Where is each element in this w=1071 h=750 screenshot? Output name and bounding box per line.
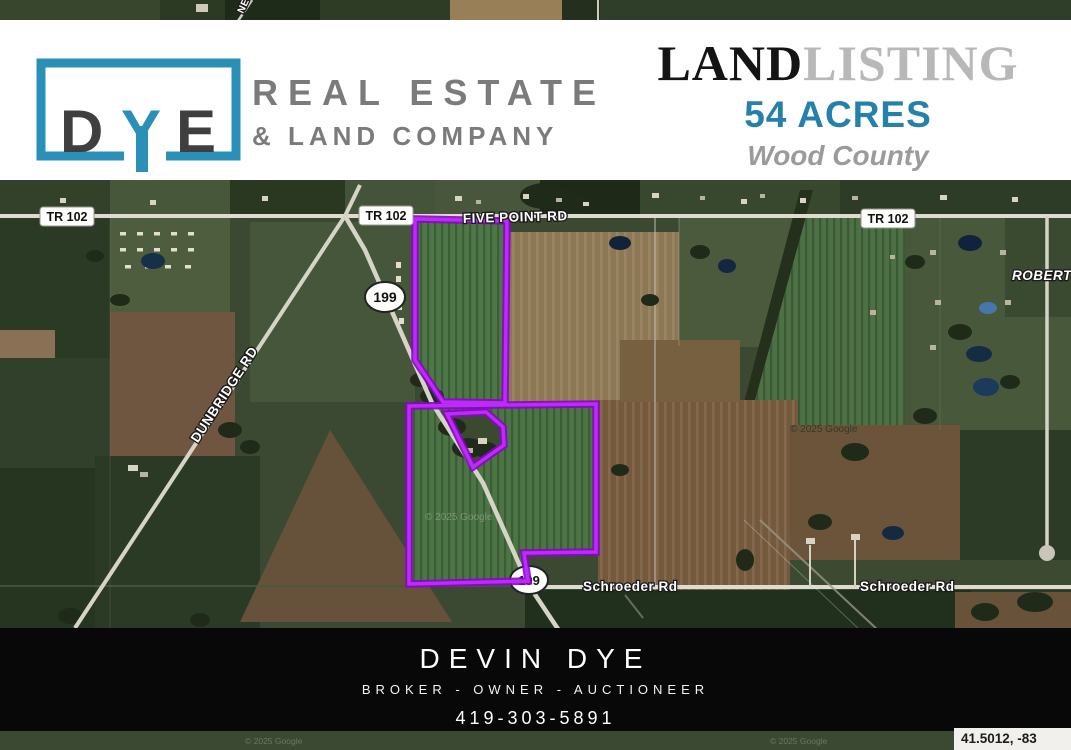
agent-title: BROKER - OWNER - AUCTIONEER [0,682,1071,697]
road-label-five-point: FIVE POINT RD [463,208,568,226]
company-name: REAL ESTATE & LAND COMPANY [252,72,606,152]
route-199-shield: 199 [365,282,405,312]
footer-banner: DEVIN DYE BROKER - OWNER - AUCTIONEER 41… [0,628,1071,731]
county-text: Wood County [628,140,1048,172]
listing-headline: LANDLISTING 54 ACRES Wood County [628,34,1048,172]
logo-letter-d: D [60,98,103,165]
google-watermark: © 2025 Google [790,424,858,435]
svg-text:TR 102: TR 102 [868,212,909,226]
map-coordinates: 41.5012, -83 [954,728,1071,750]
road-label-tr102-center: TR 102 [359,206,413,225]
svg-text:TR 102: TR 102 [366,209,407,223]
road-label-tr102-right: TR 102 [861,209,915,228]
company-name-line1: REAL ESTATE [252,72,606,114]
logo-letter-y: Y [121,98,161,165]
svg-text:TR 102: TR 102 [47,210,88,224]
acreage-text: 54 ACRES [628,94,1048,136]
agent-name: DEVIN DYE [0,643,1071,675]
land-listing-word-land: LAND [657,35,803,91]
google-watermark: © 2025 Google [245,736,303,746]
dye-logo: D Y E [36,58,251,176]
logo-letter-e: E [176,98,216,165]
land-listing-title: LANDLISTING [628,34,1048,92]
road-label-roberts: ROBERTS [1012,268,1071,283]
land-listing-flyer: © 2025 Google © 2025 Google © 2025 Googl… [0,0,1071,750]
land-listing-word-listing: LISTING [803,35,1018,91]
agent-phone: 419-303-5891 [0,708,1071,729]
svg-text:199: 199 [373,289,397,305]
header-banner: D Y E REAL ESTATE & LAND COMPANY LANDLIS… [0,20,1071,180]
company-name-line2: & LAND COMPANY [252,121,606,152]
google-watermark: © 2025 Google [770,736,828,746]
google-watermark: © 2025 Google [425,512,493,523]
road-label-schroeder-left: Schroeder Rd [583,579,678,594]
road-label-schroeder-right: Schroeder Rd [860,579,955,594]
road-label-tr102-left: TR 102 [40,207,94,226]
